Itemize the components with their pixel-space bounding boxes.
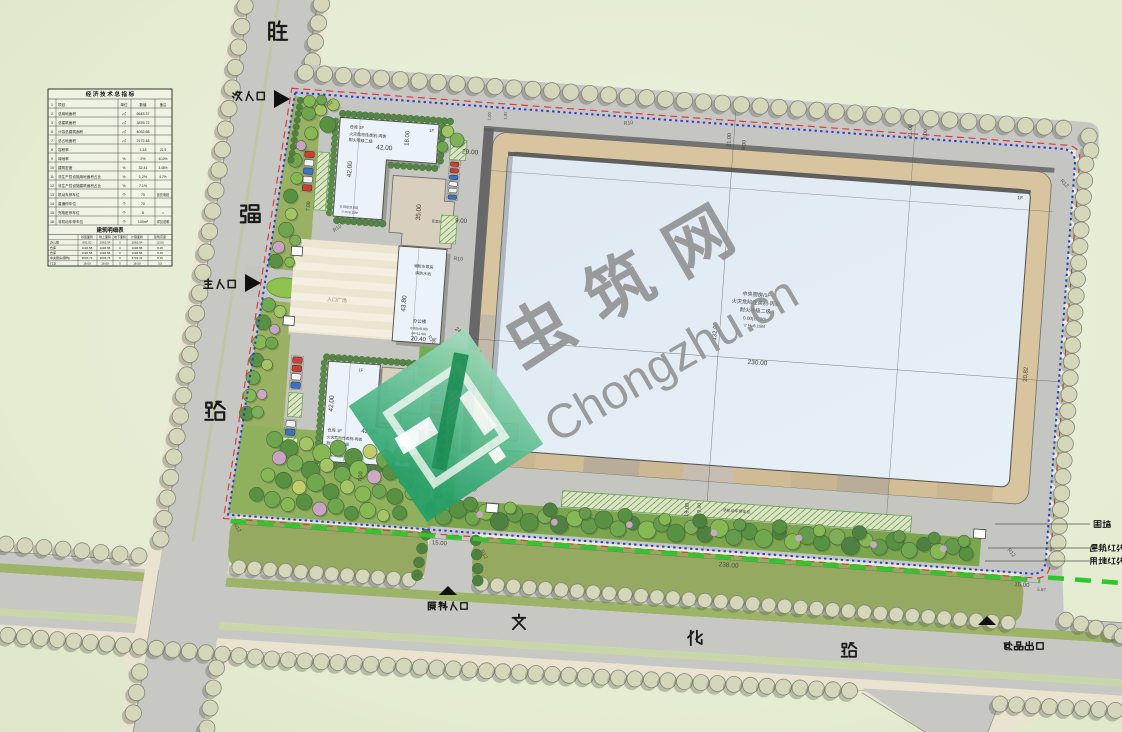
svg-text:㎡: ㎡	[122, 120, 126, 125]
svg-text:9: 9	[51, 157, 53, 161]
svg-text:8: 8	[51, 148, 53, 152]
svg-text:1: 1	[51, 103, 53, 107]
svg-text:门卫: 门卫	[50, 261, 56, 266]
svg-text:个: 个	[122, 210, 126, 215]
svg-text:7: 7	[51, 139, 53, 143]
svg-text:14: 14	[50, 202, 54, 206]
svg-text:3.5: 3.5	[158, 262, 163, 266]
svg-text:7.00: 7.00	[305, 201, 312, 211]
svg-text:15: 15	[50, 211, 54, 215]
svg-text:18.00: 18.00	[101, 262, 109, 266]
svg-text:㎡: ㎡	[122, 138, 126, 143]
svg-text:21.00: 21.00	[726, 133, 733, 147]
svg-text:R10: R10	[453, 256, 463, 263]
svg-text:1196.58: 1196.58	[100, 246, 111, 250]
svg-text:20,82: 20,82	[1023, 366, 1030, 382]
svg-text:19.00: 19.00	[684, 503, 691, 517]
svg-text:仓库: 仓库	[50, 245, 56, 250]
svg-text:7.00: 7.00	[358, 471, 365, 482]
svg-text:经 济 技 术 总 指 标: 经 济 技 术 总 指 标	[86, 90, 135, 98]
svg-text:1.00: 1.00	[487, 111, 493, 120]
svg-text:详见说明: 详见说明	[157, 219, 170, 224]
svg-text:机动车停车位: 机动车停车位	[58, 192, 80, 197]
svg-text:238.00: 238.00	[718, 561, 739, 569]
svg-text:4.7%: 4.7%	[159, 175, 166, 179]
svg-text:入口广场: 入口广场	[327, 296, 347, 304]
svg-text:基底面积: 基底面积	[81, 234, 93, 239]
svg-text:12.00: 12.00	[156, 241, 164, 245]
svg-text:42.00: 42.00	[376, 144, 393, 152]
svg-text:8.15: 8.15	[157, 246, 163, 250]
svg-text:非生产性设施建筑面积占比: 非生产性设施建筑面积占比	[58, 183, 102, 188]
svg-text:普通停车位: 普通停车位	[58, 201, 76, 206]
svg-text:9.00: 9.00	[922, 129, 929, 139]
svg-text:单位: 单位	[120, 102, 128, 107]
svg-text:6: 6	[51, 130, 53, 134]
svg-text:16: 16	[50, 220, 54, 224]
svg-text:个: 个	[122, 201, 126, 206]
svg-text:地上面积: 地上面积	[99, 234, 111, 239]
svg-text:4/10%: 4/10%	[158, 157, 167, 161]
svg-text:3: 3	[51, 121, 53, 125]
svg-text:1F: 1F	[358, 367, 364, 372]
svg-text:计容总建筑面积: 计容总建筑面积	[58, 129, 84, 134]
svg-text:2172.48: 2172.48	[137, 139, 150, 143]
svg-text:29.00: 29.00	[462, 148, 479, 156]
svg-text:18.00: 18.00	[133, 262, 141, 266]
svg-text:42.00: 42.00	[328, 395, 336, 412]
svg-text:仓库: 仓库	[50, 250, 56, 255]
svg-text:中央厨房(钢构): 中央厨房(钢构)	[50, 255, 70, 260]
svg-text:70: 70	[141, 193, 145, 197]
svg-text:32.41: 32.41	[139, 166, 148, 170]
svg-text:数值: 数值	[139, 102, 147, 107]
svg-text:=: =	[162, 211, 164, 215]
svg-text:1.97: 1.97	[503, 111, 509, 120]
svg-text:5.87: 5.87	[1037, 587, 1047, 593]
svg-text:9.00: 9.00	[455, 218, 468, 225]
svg-text:备注: 备注	[160, 102, 167, 107]
svg-text:10: 10	[50, 166, 54, 170]
svg-text:21.00: 21.00	[907, 124, 914, 138]
svg-text:4032.68: 4032.68	[137, 130, 150, 134]
svg-text:含充电桩: 含充电桩	[157, 192, 171, 197]
svg-text:3.48%: 3.48%	[158, 166, 167, 170]
svg-text:2065.54: 2065.54	[100, 241, 111, 245]
svg-text:容积率: 容积率	[58, 147, 69, 152]
svg-text:43.80: 43.80	[400, 295, 408, 312]
svg-text:8: 8	[142, 211, 144, 215]
svg-text:13: 13	[50, 193, 54, 197]
svg-text:建筑密度: 建筑密度	[58, 165, 73, 170]
svg-text:总占地面积: 总占地面积	[58, 138, 76, 143]
svg-text:非机动车停车位: 非机动车停车位	[58, 219, 84, 224]
svg-text:1196.58: 1196.58	[132, 251, 143, 255]
svg-text:18.00: 18.00	[83, 262, 91, 266]
svg-text:R10: R10	[623, 120, 633, 127]
svg-text:8.15: 8.15	[157, 251, 163, 255]
svg-text:充电桩停车位: 充电桩停车位	[58, 210, 80, 215]
svg-text:1F: 1F	[429, 128, 435, 133]
svg-text:1196.58: 1196.58	[82, 251, 93, 255]
svg-text:6645.37: 6645.37	[137, 112, 150, 116]
svg-text:42.00: 42.00	[346, 160, 354, 177]
svg-text:㎡: ㎡	[122, 111, 126, 116]
svg-text:70: 70	[141, 202, 145, 206]
svg-text:9.00: 9.00	[696, 502, 703, 512]
svg-text:总建筑面积: 总建筑面积	[58, 120, 76, 125]
svg-text:3876.72: 3876.72	[137, 121, 150, 125]
svg-text:1196.58: 1196.58	[132, 246, 143, 250]
svg-text:㎡: ㎡	[122, 129, 126, 134]
svg-text:1.2%: 1.2%	[139, 175, 148, 179]
svg-text:办公楼: 办公楼	[50, 240, 59, 245]
svg-text:个: 个	[122, 219, 126, 224]
svg-text:个: 个	[122, 192, 126, 197]
svg-text:20.40: 20.40	[411, 336, 427, 343]
svg-text:12: 12	[50, 184, 54, 188]
svg-text:11: 11	[50, 175, 54, 179]
svg-text:230.00: 230.00	[747, 359, 768, 367]
svg-text:3046.74: 3046.74	[82, 256, 93, 260]
svg-text:8.15: 8.15	[157, 256, 163, 260]
svg-text:1.18: 1.18	[140, 148, 147, 152]
svg-text:100m²: 100m²	[138, 220, 149, 224]
svg-text:2%: 2%	[140, 157, 146, 161]
svg-text:1F: 1F	[1017, 195, 1023, 201]
svg-text:非生产性设施用地面积占比: 非生产性设施用地面积占比	[58, 174, 102, 179]
svg-text:15.00: 15.00	[432, 540, 448, 547]
svg-text:地下面积: 地下面积	[114, 234, 126, 239]
svg-text:18.00: 18.00	[404, 130, 411, 146]
svg-text:9.00: 9.00	[741, 140, 748, 150]
svg-text:1196.58: 1196.58	[100, 251, 111, 255]
svg-text:15.00: 15.00	[1014, 582, 1030, 589]
svg-text:1196.58: 1196.58	[82, 246, 93, 250]
svg-text:4732.32: 4732.32	[132, 256, 143, 260]
svg-text:绿地率: 绿地率	[58, 156, 69, 161]
svg-text:7.1%: 7.1%	[139, 184, 148, 188]
svg-text:2065.54: 2065.54	[132, 241, 143, 245]
svg-text:计容面积: 计容面积	[131, 234, 143, 239]
svg-text:建筑高度: 建筑高度	[154, 234, 166, 239]
svg-text:建筑明细表: 建筑明细表	[96, 226, 125, 234]
svg-text:总用地面积: 总用地面积	[58, 111, 76, 116]
svg-text:35.00: 35.00	[415, 204, 423, 221]
svg-text:项目: 项目	[58, 102, 65, 107]
svg-text:3046.74: 3046.74	[100, 256, 111, 260]
svg-text:21.5: 21.5	[160, 148, 166, 152]
svg-text:2: 2	[51, 112, 53, 116]
svg-text:消防水池: 消防水池	[415, 269, 431, 276]
svg-text:891.52: 891.52	[82, 241, 92, 245]
